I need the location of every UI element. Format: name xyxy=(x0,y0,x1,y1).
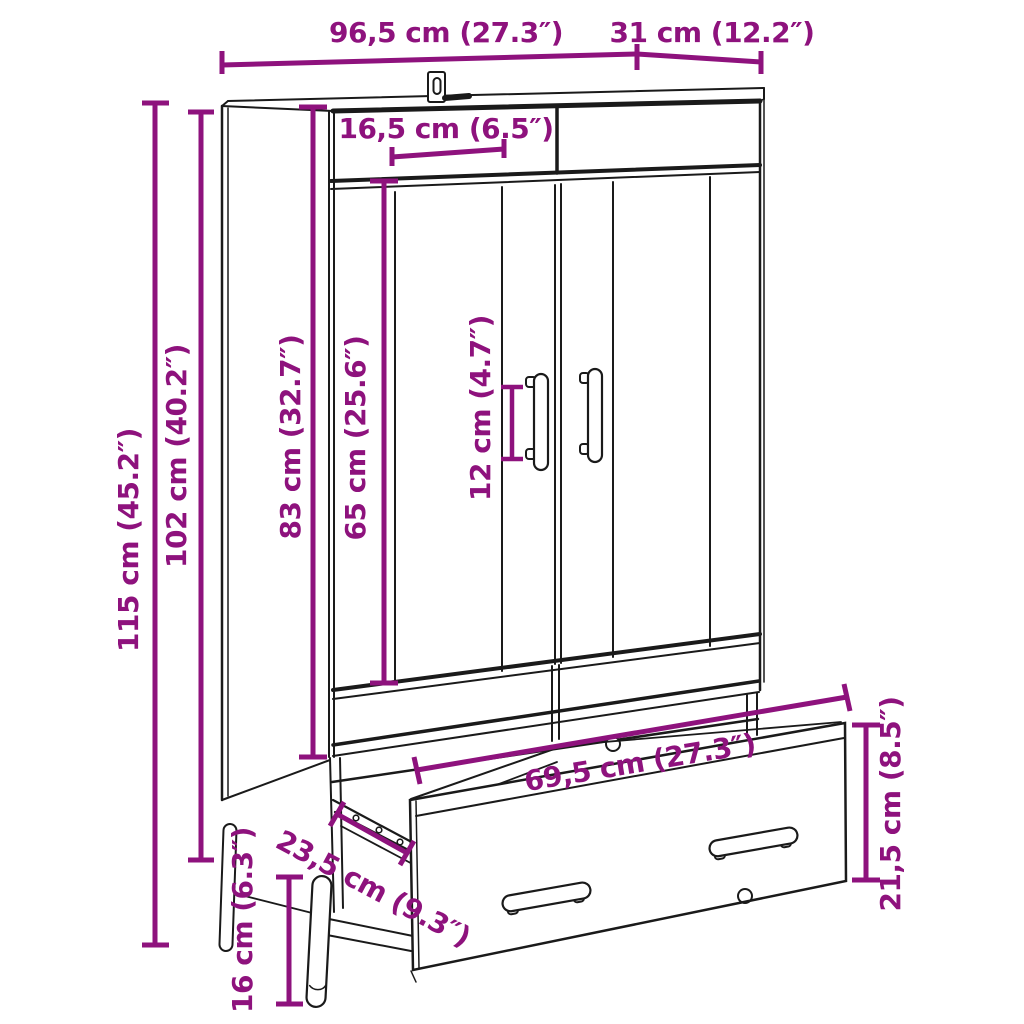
dim-line-leg-height xyxy=(276,877,303,1004)
dim-line-handle-length xyxy=(501,387,523,459)
front-left-leg xyxy=(306,876,332,1008)
door-handle-right xyxy=(580,369,602,462)
dim-label-leg-height: 16 cm (6.3″) xyxy=(229,827,257,1013)
leg-stretcher xyxy=(327,919,413,951)
dim-label-drawer-height: 21,5 cm (8.5″) xyxy=(877,696,905,911)
dim-label-handle-length: 12 cm (4.7″) xyxy=(467,315,495,501)
wall-bracket xyxy=(428,72,469,102)
dim-label-depth: 31 cm (12.2″) xyxy=(610,19,815,47)
dim-label-height-carcass: 102 cm (40.2″) xyxy=(163,344,191,568)
dim-label-width-total: 96,5 cm (27.3″) xyxy=(329,19,563,47)
dim-label-height-total: 115 cm (45.2″) xyxy=(115,428,143,652)
dim-line-door-inner xyxy=(370,181,398,683)
dim-label-header-height: 16,5 cm (6.5″) xyxy=(338,115,553,143)
dim-line-depth xyxy=(637,51,761,74)
dim-label-door-inner: 65 cm (25.6″) xyxy=(342,336,370,541)
door-handle-left xyxy=(526,374,548,470)
dimension-diagram: 96,5 cm (27.3″) 31 cm (12.2″) 16,5 cm (6… xyxy=(0,0,1024,1024)
center-gap-lower xyxy=(552,665,559,741)
dim-label-door-outer: 83 cm (32.7″) xyxy=(277,335,305,540)
door-stiles xyxy=(395,177,710,683)
cabinet-line-art xyxy=(0,0,1024,1024)
